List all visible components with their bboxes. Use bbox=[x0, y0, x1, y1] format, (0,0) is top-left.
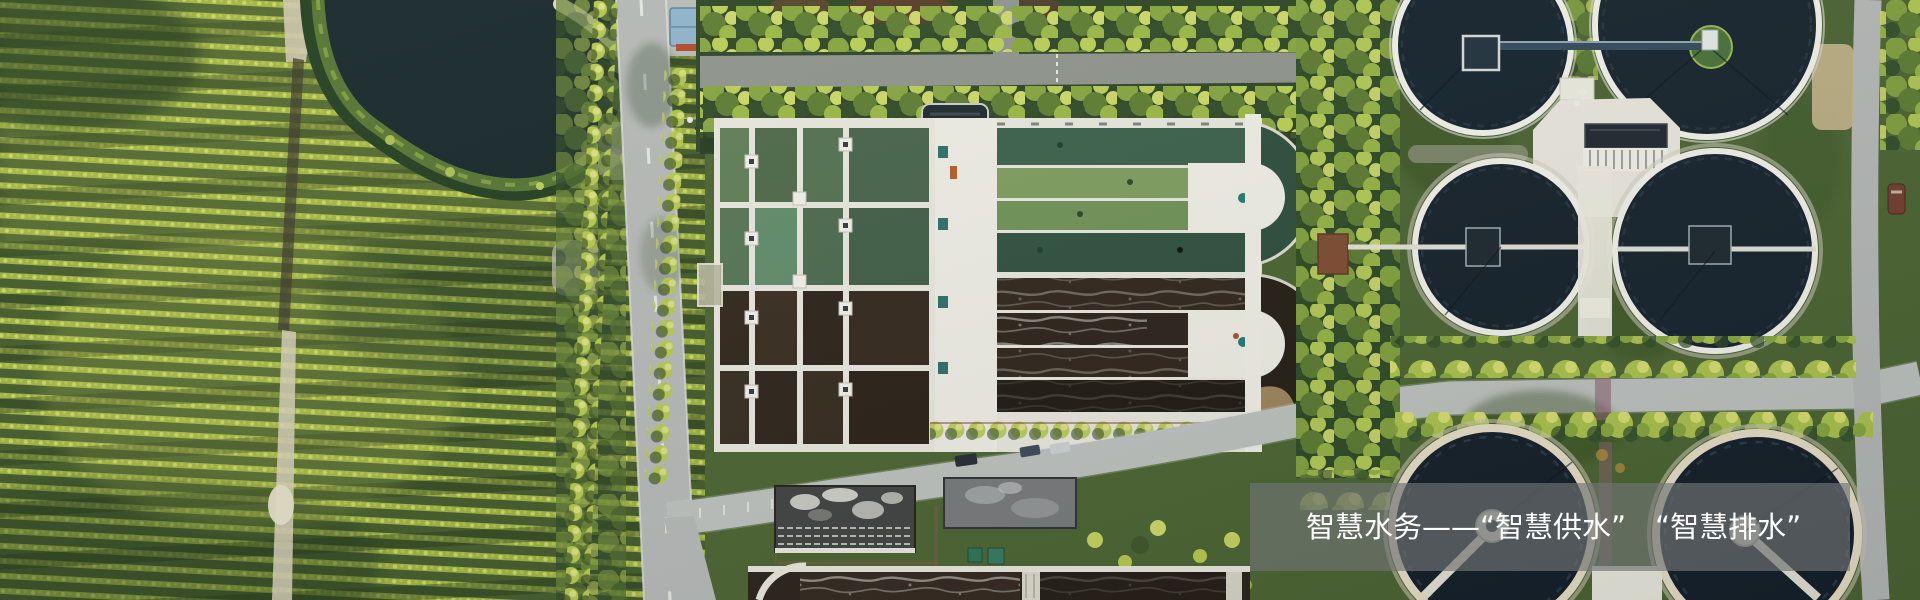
hero-banner: 智慧水务——“智慧供水” “智慧排水” bbox=[0, 0, 1920, 600]
slogan-panel: 智慧水务——“智慧供水” “智慧排水” bbox=[1250, 483, 1850, 571]
slogan-text: 智慧水务——“智慧供水” “智慧排水” bbox=[1306, 513, 1801, 542]
